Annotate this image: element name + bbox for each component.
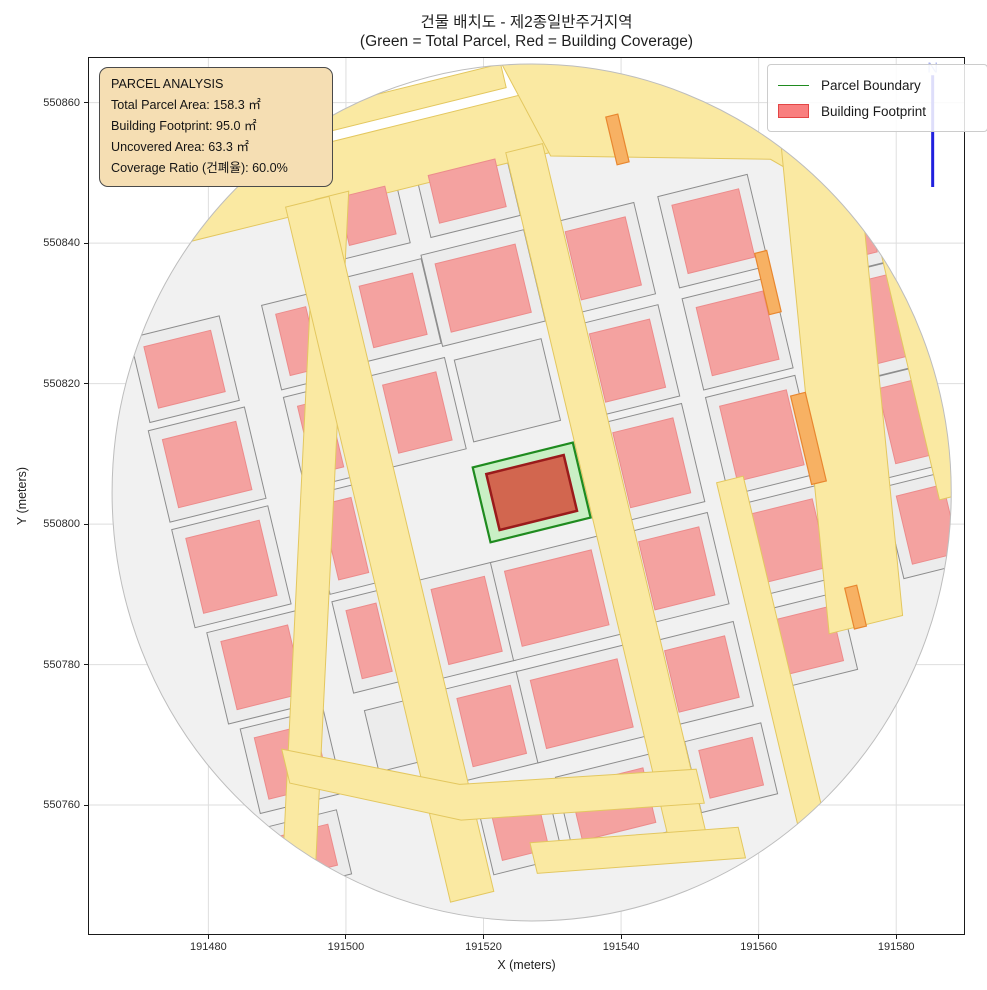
y-tick-mark [84, 243, 88, 244]
y-tick-label: 550780 [2, 659, 80, 671]
map-canvas: N [88, 57, 965, 935]
x-tick-label: 191500 [328, 941, 365, 953]
info-line-coverage: Coverage Ratio (건폐율): 60.0% [111, 158, 321, 179]
y-tick-label: 550760 [2, 799, 80, 811]
y-tick-label: 550860 [2, 97, 80, 109]
y-tick-mark [84, 805, 88, 806]
info-line-uncovered: Uncovered Area: 63.3 ㎡ [111, 137, 321, 158]
y-axis-label: Y (meters) [15, 467, 29, 525]
y-tick-mark [84, 524, 88, 525]
x-axis-label: X (meters) [88, 958, 965, 972]
y-tick-label: 550820 [2, 378, 80, 390]
legend-item-building-footprint: Building Footprint [778, 98, 977, 124]
building-footprint-patch-swatch [778, 104, 809, 118]
x-tick-mark [208, 935, 209, 939]
legend-label: Building Footprint [821, 104, 926, 119]
y-tick-mark [84, 102, 88, 103]
parcel-analysis-box: PARCEL ANALYSIS Total Parcel Area: 158.3… [99, 67, 333, 187]
legend-item-parcel-boundary: Parcel Boundary [778, 72, 977, 98]
x-tick-label: 191540 [603, 941, 640, 953]
chart-subtitle: (Green = Total Parcel, Red = Building Co… [88, 33, 965, 51]
info-line-footprint: Building Footprint: 95.0 ㎡ [111, 116, 321, 137]
chart-title: 건물 배치도 - 제2종일반주거지역 [88, 10, 965, 32]
legend-label: Parcel Boundary [821, 78, 921, 93]
x-tick-label: 191560 [740, 941, 777, 953]
x-tick-mark [483, 935, 484, 939]
x-tick-mark [758, 935, 759, 939]
y-tick-label: 550840 [2, 237, 80, 249]
y-tick-mark [84, 664, 88, 665]
parcel-boundary-line-swatch [778, 85, 809, 86]
y-tick-mark [84, 383, 88, 384]
figure: 건물 배치도 - 제2종일반주거지역 (Green = Total Parcel… [0, 0, 987, 990]
x-tick-mark [896, 935, 897, 939]
x-tick-label: 191480 [190, 941, 227, 953]
x-tick-mark [621, 935, 622, 939]
info-line-total: Total Parcel Area: 158.3 ㎡ [111, 95, 321, 116]
y-tick-label: 550800 [2, 518, 80, 530]
info-line-title: PARCEL ANALYSIS [111, 74, 321, 95]
legend: Parcel Boundary Building Footprint [767, 64, 987, 132]
x-tick-mark [345, 935, 346, 939]
x-tick-label: 191520 [465, 941, 502, 953]
plot-area: N PARCEL ANALYSIS Total Parcel Area: 158… [88, 57, 965, 935]
x-tick-label: 191580 [878, 941, 915, 953]
